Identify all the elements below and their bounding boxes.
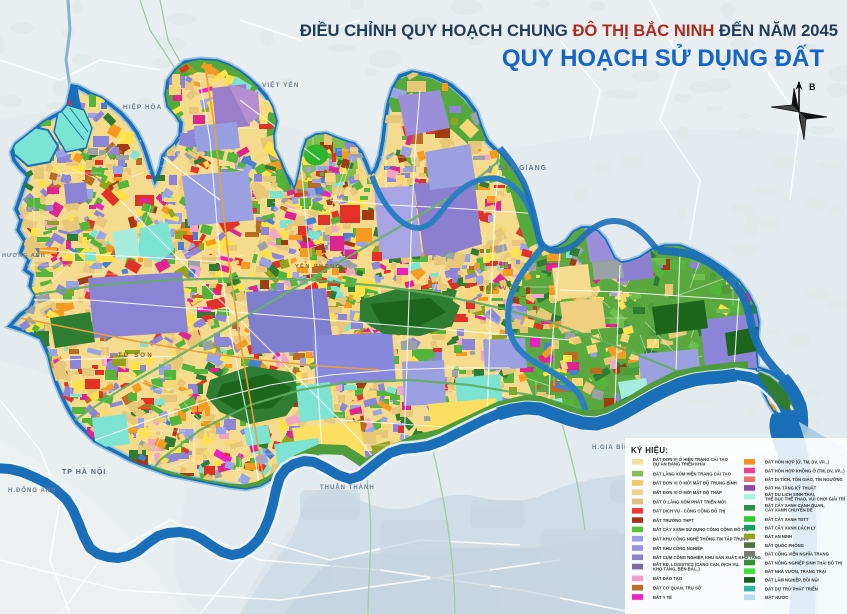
svg-text:KHO TÀNG, BẾN BÃI...): KHO TÀNG, BẾN BÃI...) (653, 566, 700, 571)
svg-text:ĐẤT ĐÀO TẠO: ĐẤT ĐÀO TẠO (653, 576, 683, 581)
svg-text:THỂ DỤC THỂ THAO, VUI CHƠI GIẢ: THỂ DỤC THỂ THAO, VUI CHƠI GIẢI TRÍ (765, 496, 846, 501)
svg-text:ĐẤT Ở LÀNG XÓM PHÁT TRIỂN MỚI: ĐẤT Ở LÀNG XÓM PHÁT TRIỂN MỚI (653, 499, 726, 504)
svg-text:ĐẤT QUỐC PHÒNG: ĐẤT QUỐC PHÒNG (765, 543, 804, 548)
svg-text:THUẬN THÀNH: THUẬN THÀNH (320, 484, 375, 491)
svg-text:ĐẤT CÔNG VIÊN NGHĨA TRANG: ĐẤT CÔNG VIÊN NGHĨA TRANG (765, 552, 829, 557)
svg-text:ĐẤT KHU CÔNG NGHIỆP: ĐẤT KHU CÔNG NGHIỆP (653, 546, 703, 551)
svg-text:ĐẤT CÂY XANH SỬ DỤNG CÔNG CỘNG: ĐẤT CÂY XANH SỬ DỤNG CÔNG CỘNG ĐÔ THỊ (653, 527, 748, 532)
svg-text:H.ĐÔNG ANH: H.ĐÔNG ANH (8, 486, 56, 494)
svg-text:HƯƠNG ANH: HƯƠNG ANH (2, 253, 46, 259)
svg-text:ĐẤT CÂY XANH CÁCH LY: ĐẤT CÂY XANH CÁCH LY (765, 526, 816, 531)
svg-text:ĐẤT HỖN HỢP KHÔNG Ở (TM, DV, V: ĐẤT HỖN HỢP KHÔNG Ở (TM, DV, VP...) (765, 468, 845, 473)
svg-text:ĐẤT LÀNG XÓM HIỆN TRẠNG CẢI TẠ: ĐẤT LÀNG XÓM HIỆN TRẠNG CẢI TẠO (653, 471, 732, 476)
svg-text:ĐẤT NHÀ VƯỜN, TRANG TRẠI: ĐẤT NHÀ VƯỜN, TRANG TRẠI (765, 569, 826, 574)
svg-text:QUY HOẠCH SỬ DỤNG ĐẤT: QUY HOẠCH SỬ DỤNG ĐẤT (502, 43, 824, 72)
svg-text:ĐẤT TRƯỜNG THPT: ĐẤT TRƯỜNG THPT (653, 518, 694, 523)
svg-text:ĐẤT ĐƠN VỊ Ở MỚI MẬT ĐỘ TRUNG: ĐẤT ĐƠN VỊ Ở MỚI MẬT ĐỘ TRUNG BÌNH (653, 481, 737, 486)
svg-text:YÊN PHONG: YÊN PHONG (295, 262, 342, 270)
svg-text:MẶT NƯỚC: MẶT NƯỚC (765, 595, 788, 600)
svg-text:CÂY XANH CHUYÊN ĐỀ: CÂY XANH CHUYÊN ĐỀ (765, 508, 813, 513)
svg-text:ĐIỀU CHỈNH QUY HOẠCH CHUNG ĐÔ: ĐIỀU CHỈNH QUY HOẠCH CHUNG ĐÔ THỊ BẮC NI… (300, 21, 838, 40)
svg-text:DỰ ÁN ĐANG TRIỂN KHAI: DỰ ÁN ĐANG TRIỂN KHAI (653, 462, 705, 467)
svg-text:ĐẤT HỖN HỢP (Ở, TM, DV, VP...): ĐẤT HỖN HỢP (Ở, TM, DV, VP...) (765, 460, 830, 465)
svg-text:ĐẤT DỰ TRỮ PHÁT TRIỂN: ĐẤT DỰ TRỮ PHÁT TRIỂN (765, 586, 818, 591)
svg-text:VIỆT YÊN: VIỆT YÊN (262, 80, 300, 89)
svg-text:ĐẤT CÂY XANH TDTT: ĐẤT CÂY XANH TDTT (765, 517, 809, 522)
svg-text:QUẾ VÕ: QUẾ VÕ (480, 285, 515, 292)
svg-text:HIỆP HÒA: HIỆP HÒA (123, 102, 162, 111)
svg-text:ĐẤT KHU CÔNG NGHỆ THÔNG TIN TẬ: ĐẤT KHU CÔNG NGHỆ THÔNG TIN TẬP TRUNG (653, 537, 749, 542)
svg-text:ĐẤT Y TẾ: ĐẤT Y TẾ (653, 595, 672, 600)
svg-text:B: B (809, 82, 816, 92)
svg-text:KÝ HIỆU:: KÝ HIỆU: (631, 446, 668, 455)
svg-text:ĐẤT AN NINH: ĐẤT AN NINH (765, 534, 792, 539)
svg-text:ĐẤT NÔNG NGHIỆP SINH THÁI ĐÔ T: ĐẤT NÔNG NGHIỆP SINH THÁI ĐÔ THỊ (765, 560, 842, 565)
svg-text:TP HÀ NỘI: TP HÀ NỘI (62, 467, 106, 476)
svg-text:ĐẤT ĐƠN VỊ Ở MỚI MẬT ĐỘ THẤP: ĐẤT ĐƠN VỊ Ở MỚI MẬT ĐỘ THẤP (653, 490, 722, 495)
svg-text:BẮC GIANG: BẮC GIANG (498, 163, 547, 172)
svg-text:ĐẤT LÂM NGHIỆP, ĐỒI NÚI: ĐẤT LÂM NGHIỆP, ĐỒI NÚI (765, 578, 819, 583)
svg-text:ĐẤT DI TÍCH, TÔN GIÁO, TÍN NGƯ: ĐẤT DI TÍCH, TÔN GIÁO, TÍN NGƯỠNG (765, 477, 843, 482)
svg-text:ĐẤT HẠ TẦNG KỸ THUẬT: ĐẤT HẠ TẦNG KỸ THUẬT (765, 486, 817, 491)
svg-text:ĐẤT DỊCH VỤ - CÔNG CỘNG ĐÔ THỊ: ĐẤT DỊCH VỤ - CÔNG CỘNG ĐÔ THỊ (653, 509, 725, 514)
svg-text:ĐẤT CƠ QUAN, TRỤ SỞ: ĐẤT CƠ QUAN, TRỤ SỞ (653, 586, 702, 591)
svg-text:TỪ SƠN: TỪ SƠN (118, 352, 154, 359)
